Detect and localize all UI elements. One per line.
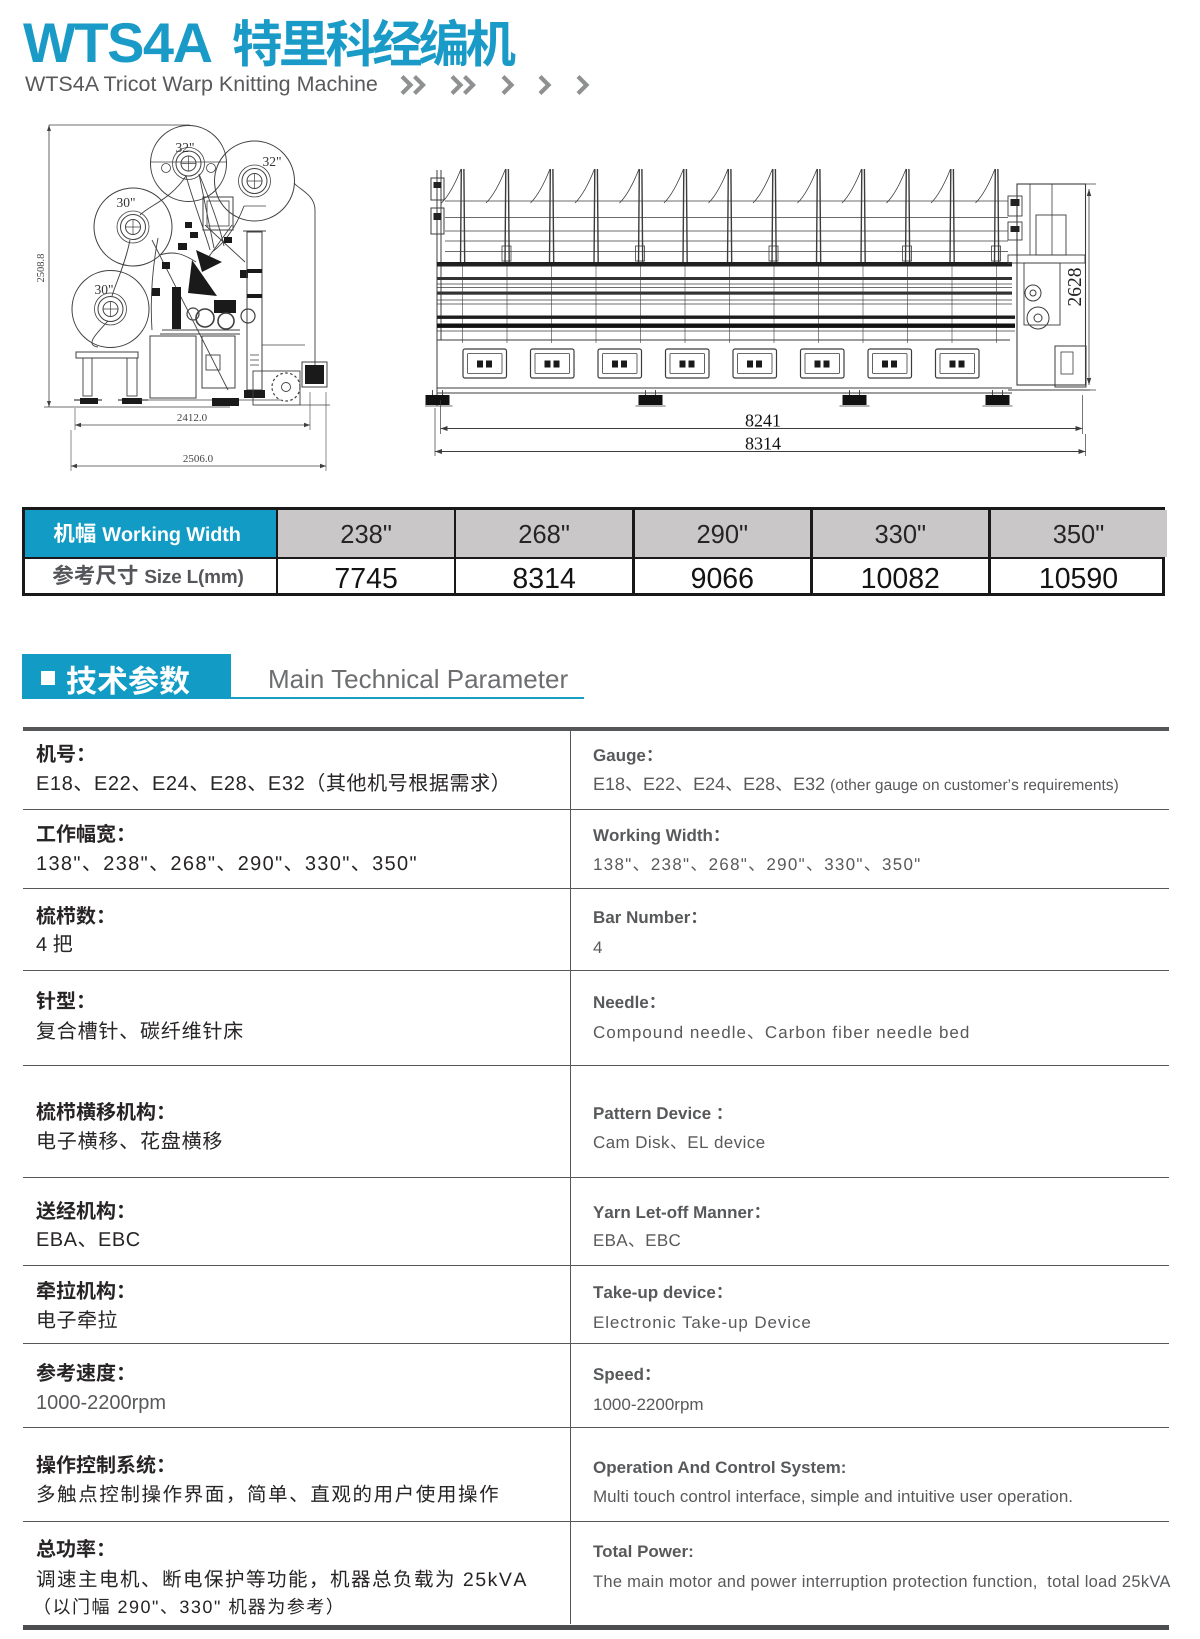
svg-text:2506.0: 2506.0 [183, 453, 214, 465]
svg-text:8314: 8314 [745, 434, 781, 454]
svg-text:30": 30" [116, 195, 135, 210]
svg-text:30": 30" [94, 282, 113, 297]
svg-text:8241: 8241 [745, 411, 781, 431]
svg-text:32": 32" [175, 140, 194, 155]
svg-text:2508.8: 2508.8 [36, 254, 47, 283]
svg-text:32": 32" [262, 154, 281, 169]
svg-text:2628: 2628 [1065, 268, 1086, 307]
svg-text:2412.0: 2412.0 [177, 412, 208, 424]
